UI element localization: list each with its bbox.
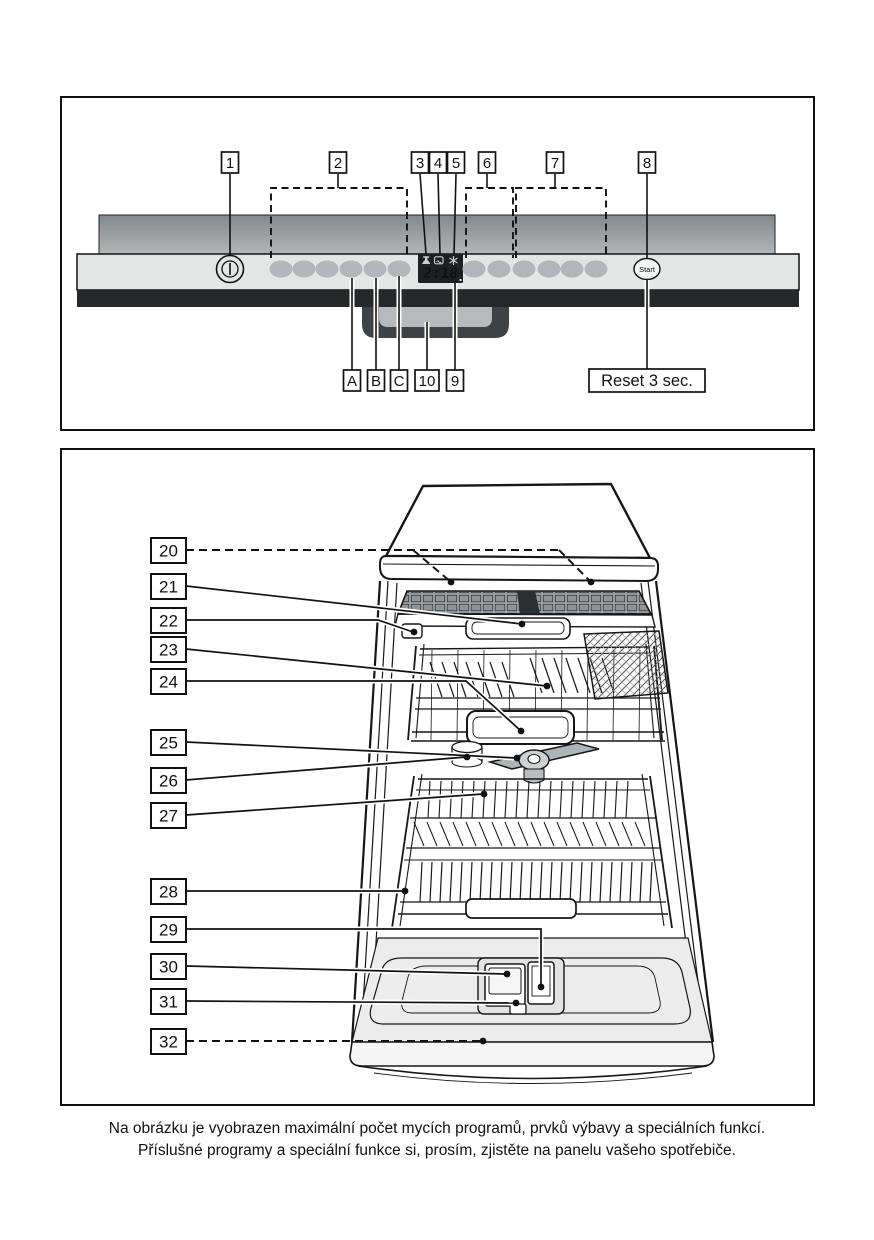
lower-basket-handle bbox=[466, 899, 576, 918]
callout-24: 24 bbox=[159, 673, 178, 692]
caption: Na obrázku je vyobrazen maximální počet … bbox=[0, 1118, 874, 1162]
program-button bbox=[293, 261, 316, 278]
callout-5: 5 bbox=[452, 155, 460, 172]
spray-arm-area bbox=[452, 742, 599, 784]
option-button bbox=[488, 261, 511, 278]
callout-31: 31 bbox=[159, 993, 178, 1012]
power-button-icon bbox=[217, 256, 244, 283]
callout-27: 27 bbox=[159, 807, 178, 826]
program-button bbox=[364, 261, 387, 278]
panel-dark-band bbox=[77, 290, 799, 307]
callout-23: 23 bbox=[159, 641, 178, 660]
callout-labels: 20 21 22 23 24 25 26 27 28 29 bbox=[151, 538, 186, 1054]
display-time: 2:18 bbox=[422, 265, 459, 282]
callout-2: 2 bbox=[334, 155, 342, 172]
display: 2:18 bbox=[418, 254, 463, 283]
callout-4: 4 bbox=[434, 155, 442, 172]
detergent-dispenser bbox=[478, 958, 564, 1014]
callout-29: 29 bbox=[159, 921, 178, 940]
callout-25: 25 bbox=[159, 734, 178, 753]
callout-3: 3 bbox=[416, 155, 424, 172]
door-front-edge bbox=[350, 1042, 714, 1066]
option-button bbox=[538, 261, 561, 278]
callout-10: 10 bbox=[419, 373, 436, 390]
program-button bbox=[388, 261, 411, 278]
callout-labels-top: 1 2 3 4 5 6 7 8 bbox=[222, 152, 656, 173]
callout-A: A bbox=[347, 373, 357, 390]
leader-26 bbox=[186, 757, 466, 780]
program-button bbox=[270, 261, 293, 278]
callout-28: 28 bbox=[159, 883, 178, 902]
callout-C: C bbox=[394, 373, 405, 390]
start-button: Start bbox=[634, 259, 660, 280]
callout-labels-bottom: A B C 10 9 Reset 3 sec. bbox=[344, 369, 706, 392]
callout-21: 21 bbox=[159, 578, 178, 597]
option-button bbox=[585, 261, 608, 278]
option-button bbox=[561, 261, 584, 278]
manual-page: 2:18 Start bbox=[0, 0, 874, 1240]
caption-line-1: Na obrázku je vyobrazen maximální počet … bbox=[0, 1118, 874, 1140]
callout-9: 9 bbox=[451, 373, 459, 390]
callout-6: 6 bbox=[483, 155, 491, 172]
callout-20: 20 bbox=[159, 542, 178, 561]
program-button bbox=[316, 261, 339, 278]
callout-32: 32 bbox=[159, 1033, 178, 1052]
option-button bbox=[513, 261, 536, 278]
leader-27 bbox=[186, 794, 483, 815]
start-button-label: Start bbox=[639, 265, 656, 274]
worktop bbox=[380, 484, 658, 581]
callout-30: 30 bbox=[159, 958, 178, 977]
door-handle-recess bbox=[379, 307, 492, 327]
program-button bbox=[340, 261, 363, 278]
callout-B: B bbox=[371, 373, 381, 390]
option-button bbox=[463, 261, 486, 278]
control-panel-art: 2:18 Start bbox=[62, 98, 813, 429]
knife-shelf bbox=[584, 631, 668, 699]
dishwasher-art: 20 21 22 23 24 25 26 27 28 29 bbox=[62, 450, 813, 1104]
callout-22: 22 bbox=[159, 612, 178, 631]
caption-line-2: Příslušné programy a speciální funkce si… bbox=[0, 1140, 874, 1162]
callout-7: 7 bbox=[551, 155, 559, 172]
callout-8: 8 bbox=[643, 155, 651, 172]
door-top-band bbox=[99, 215, 775, 254]
figure-control-panel: 2:18 Start bbox=[60, 96, 815, 431]
callout-reset: Reset 3 sec. bbox=[601, 372, 693, 390]
callout-26: 26 bbox=[159, 772, 178, 791]
callout-1: 1 bbox=[226, 155, 234, 172]
figure-dishwasher-interior: 20 21 22 23 24 25 26 27 28 29 bbox=[60, 448, 815, 1106]
